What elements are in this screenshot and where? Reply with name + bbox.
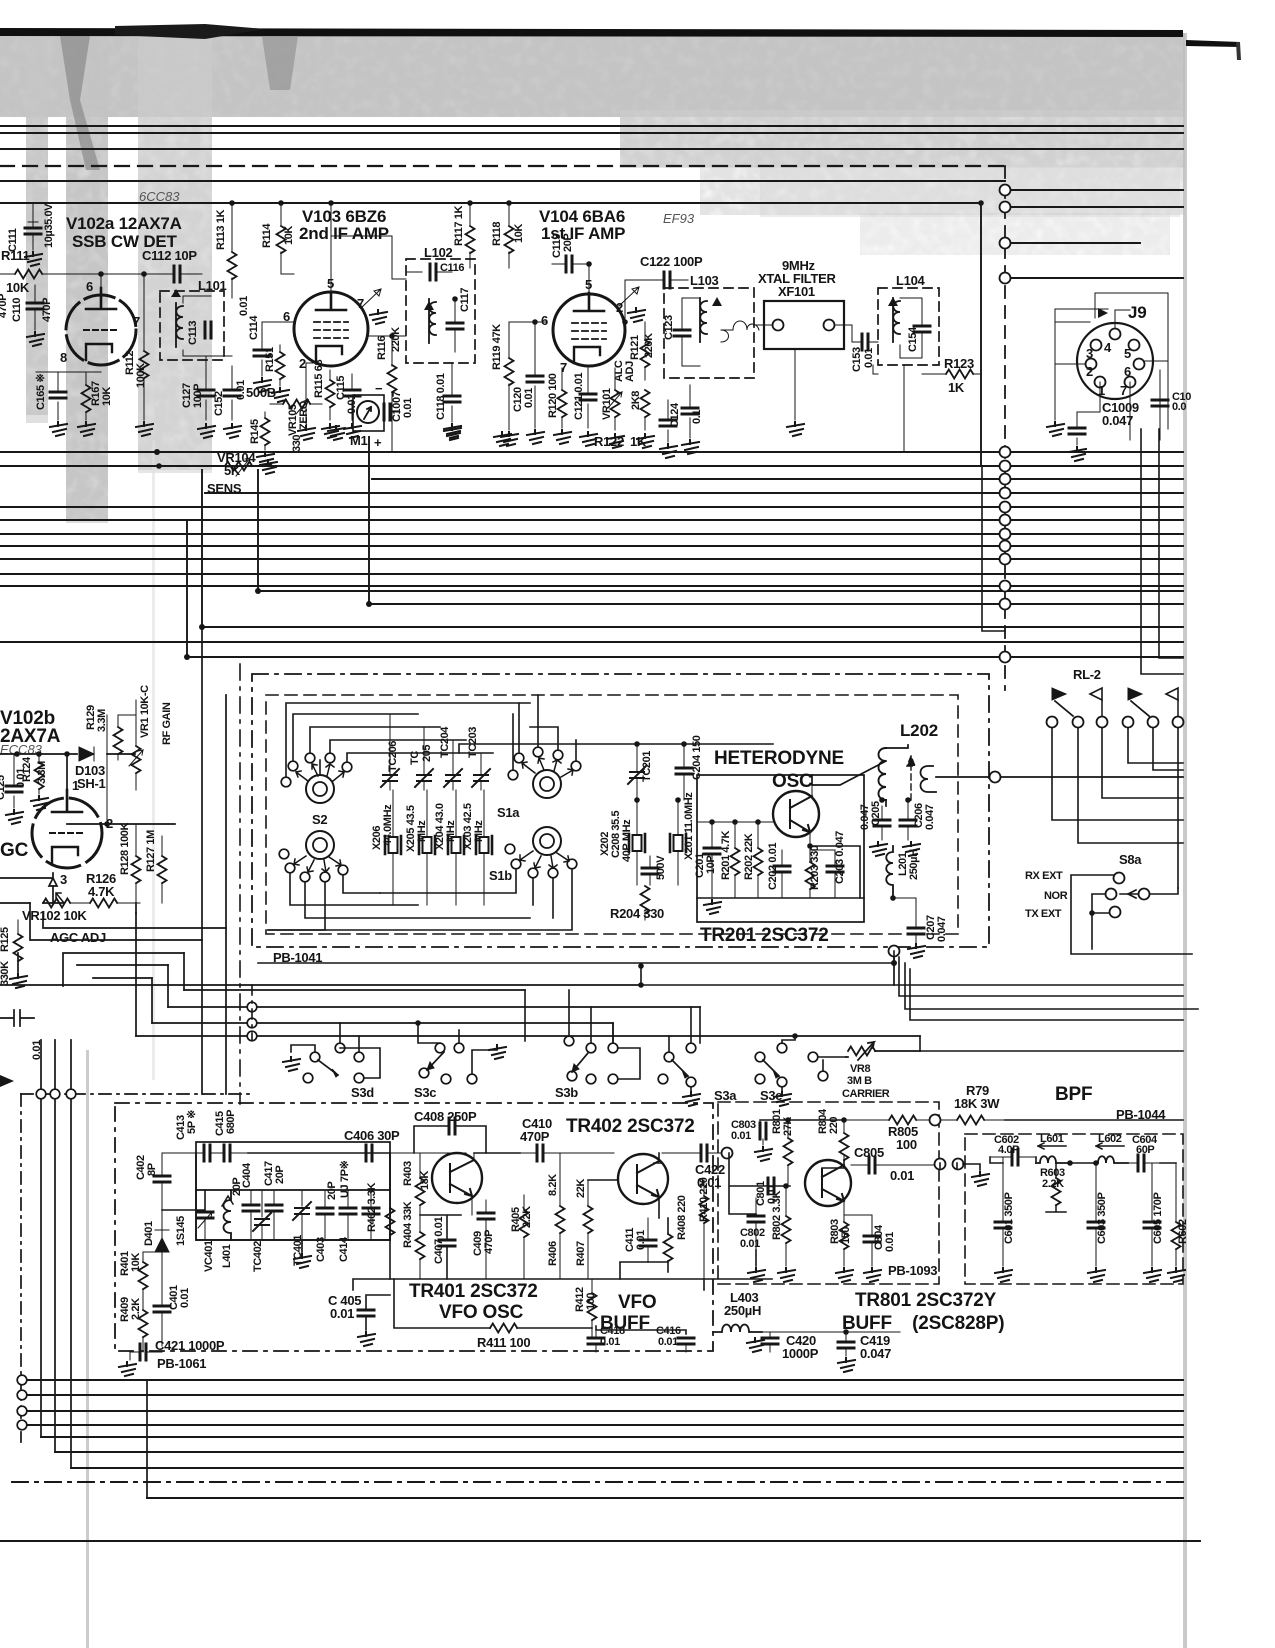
svg-text:R119 47K: R119 47K [491,324,503,370]
svg-text:VFO: VFO [618,1292,656,1313]
svg-text:R402 3.3K: R402 3.3K [366,1183,378,1232]
svg-text:7: 7 [357,296,364,311]
svg-text:0.01: 0.01 [330,1306,354,1321]
svg-text:VR8: VR8 [850,1063,870,1075]
svg-text:TC204: TC204 [439,726,451,758]
svg-text:8.2K: 8.2K [547,1174,559,1196]
svg-text:R403: R403 [402,1161,414,1186]
svg-text:TR402 2SC372: TR402 2SC372 [566,1116,695,1137]
svg-text:PB-1061: PB-1061 [157,1356,206,1371]
svg-text:R122: R122 [594,434,624,449]
svg-text:R404 33K: R404 33K [402,1201,414,1248]
svg-text:S3b: S3b [555,1085,578,1100]
svg-text:205: 205 [421,745,433,762]
svg-text:R116: R116 [376,336,388,360]
svg-text:4.7K: 4.7K [88,884,115,899]
svg-text:C125: C125 [0,775,7,800]
svg-text:10K: 10K [101,387,113,406]
svg-text:VFO OSC: VFO OSC [439,1302,524,1323]
svg-text:C123: C123 [663,315,675,340]
svg-text:EF93: EF93 [663,211,695,226]
svg-text:R120 100: R120 100 [547,373,559,418]
svg-text:AGC ADJ: AGC ADJ [50,930,106,945]
svg-text:10P: 10P [705,856,717,874]
svg-text:7: 7 [1120,383,1127,398]
svg-text:R204 330: R204 330 [610,906,664,921]
svg-text:S3e: S3e [760,1088,782,1103]
svg-text:TC: TC [409,751,421,765]
svg-text:R124: R124 [21,756,33,782]
svg-text:C805: C805 [854,1145,884,1160]
svg-text:C117: C117 [459,288,471,312]
svg-text:TR801 2SC372Y: TR801 2SC372Y [855,1290,997,1311]
svg-text:3.3M: 3.3M [96,709,108,732]
svg-text:C204 150: C204 150 [691,735,703,780]
svg-text:VR1 10K-C: VR1 10K-C [139,685,151,738]
svg-text:100K: 100K [135,363,147,388]
svg-text:R121: R121 [629,335,641,360]
svg-text:R118: R118 [491,222,503,246]
svg-text:C122 100P: C122 100P [640,254,703,269]
svg-text:7: 7 [133,314,140,329]
svg-text:UJ 7P※: UJ 7P※ [339,1160,351,1198]
svg-text:250µH: 250µH [908,849,920,880]
svg-text:470P: 470P [0,294,9,318]
svg-text:S8a: S8a [1119,852,1142,867]
svg-text:0.01: 0.01 [658,1336,678,1348]
svg-text:5: 5 [327,276,334,291]
svg-text:R151: R151 [264,347,276,372]
svg-text:10K: 10K [513,224,525,243]
svg-text:S2: S2 [312,812,327,827]
svg-text:C408 250P: C408 250P [414,1109,477,1124]
svg-text:TX EXT: TX EXT [1025,908,1062,920]
svg-text:500B: 500B [246,385,276,400]
svg-text:5: 5 [585,277,592,292]
svg-text:X201 11.0MHz: X201 11.0MHz [683,792,695,860]
svg-text:2.2K: 2.2K [521,1206,533,1228]
svg-text:M1: M1 [350,433,368,448]
svg-text:−: − [375,381,383,396]
svg-text:+: + [374,435,382,450]
svg-text:C116: C116 [440,262,464,274]
svg-text:C202 0.01: C202 0.01 [767,843,779,890]
svg-text:0.01: 0.01 [884,1232,896,1252]
svg-text:3.3M: 3.3M [36,761,48,784]
svg-text:4: 4 [1104,340,1112,355]
svg-text:BUFF (2SC828P): BUFF (2SC828P) [842,1313,1004,1334]
svg-text:C152: C152 [213,391,225,416]
svg-text:100P: 100P [192,384,204,408]
svg-text:1K: 1K [948,380,965,395]
svg-text:C110: C110 [11,298,23,322]
svg-text:C165 ※: C165 ※ [35,374,47,410]
svg-text:40P MHz: 40P MHz [621,819,633,862]
svg-text:6CC83: 6CC83 [139,189,180,204]
svg-text:3: 3 [60,872,67,887]
svg-text:8: 8 [60,350,67,365]
svg-text:J9: J9 [1128,303,1147,322]
svg-text:0.047: 0.047 [936,916,948,942]
svg-text:7: 7 [560,360,567,375]
svg-text:R127 1M: R127 1M [145,830,157,872]
svg-text:MHz: MHz [473,820,485,842]
svg-text:VR101: VR101 [601,388,613,420]
svg-text:18K: 18K [419,1171,431,1190]
svg-text:10K: 10K [6,280,30,295]
svg-text:C114: C114 [248,315,260,340]
svg-text:0.01: 0.01 [238,296,250,316]
svg-text:6: 6 [541,313,548,328]
svg-text:R111: R111 [1,248,30,263]
svg-text:VC401: VC401 [203,1240,215,1272]
svg-text:TC203: TC203 [467,727,479,758]
svg-text:0.01: 0.01 [740,1238,760,1250]
svg-text:C153: C153 [851,347,863,372]
svg-text:0.01: 0.01 [635,1230,647,1250]
svg-text:18K 3W: 18K 3W [954,1096,1000,1111]
svg-text:0.01: 0.01 [600,1336,620,1348]
svg-text:3: 3 [1086,346,1093,361]
svg-text:220: 220 [828,1117,840,1134]
svg-text:TC201: TC201 [641,751,653,782]
svg-text:0.047: 0.047 [1102,413,1133,428]
svg-text:100: 100 [896,1137,917,1152]
svg-text:20P: 20P [231,1178,243,1196]
svg-text:0.1: 0.1 [691,410,703,424]
svg-text:20P: 20P [562,234,574,252]
svg-text:R128 100K: R128 100K [119,822,131,875]
svg-text:R406: R406 [547,1241,559,1266]
svg-text:0.01: 0.01 [731,1130,751,1142]
svg-text:10K: 10K [283,226,295,245]
svg-text:C118 0.01: C118 0.01 [435,373,447,420]
svg-text:D401: D401 [143,1221,155,1246]
svg-text:R602: R602 [1177,1219,1189,1244]
svg-text:0.047: 0.047 [924,804,936,830]
svg-text:RX EXT: RX EXT [1025,870,1063,882]
svg-text:C205: C205 [870,801,882,826]
svg-text:S1b: S1b [489,868,512,883]
svg-text:RL-2: RL-2 [1073,667,1101,682]
svg-text:TR401 2SC372: TR401 2SC372 [409,1281,538,1302]
svg-text:60P: 60P [1136,1144,1154,1156]
svg-text:1000P: 1000P [782,1346,819,1361]
svg-text:L103: L103 [690,273,719,288]
svg-text:22K: 22K [575,1179,587,1198]
svg-text:L601: L601 [1040,1133,1064,1145]
svg-text:ADJ: ADJ [624,361,636,382]
svg-text:5: 5 [1124,346,1131,361]
svg-text:R123: R123 [944,356,974,371]
svg-text:MHz: MHz [445,820,457,842]
svg-text:330K: 330K [0,961,11,986]
svg-text:2: 2 [299,356,306,371]
svg-text:330: 330 [291,435,303,452]
svg-text:0.01: 0.01 [31,1040,43,1060]
svg-text:C421 1000P: C421 1000P [155,1338,225,1353]
svg-text:C605 170P: C605 170P [1152,1192,1164,1244]
svg-text:220K: 220K [643,333,655,358]
svg-text:470P: 470P [520,1129,550,1144]
svg-text:R411 100: R411 100 [477,1335,530,1350]
svg-text:5P ※: 5P ※ [186,1110,198,1134]
svg-text:L602: L602 [1098,1133,1122,1145]
svg-text:500V: 500V [655,855,667,880]
svg-text:R408 220: R408 220 [676,1195,688,1240]
svg-text:220K: 220K [390,327,402,352]
svg-text:R117 1K: R117 1K [453,206,465,246]
svg-text:2nd IF AMP: 2nd IF AMP [299,224,389,243]
svg-text:R113 1K: R113 1K [215,210,227,250]
svg-text:R125: R125 [0,927,11,952]
svg-text:SENS: SENS [207,481,242,496]
svg-text:R202 22K: R202 22K [743,833,755,880]
svg-text:10K: 10K [130,1253,142,1272]
svg-text:2.2K: 2.2K [1042,1178,1064,1190]
svg-text:SH-1: SH-1 [77,776,105,791]
svg-text:470P: 470P [483,1230,495,1254]
svg-text:S3d: S3d [351,1085,374,1100]
svg-text:44.0MHz: 44.0MHz [382,804,394,846]
svg-text:2: 2 [616,300,623,315]
svg-text:XF101: XF101 [778,284,815,299]
svg-text:VR102 10K: VR102 10K [22,908,87,923]
svg-text:C203 0.047: C203 0.047 [834,831,846,884]
svg-text:10µ35.0V: 10µ35.0V [43,203,55,248]
svg-text:2.2K: 2.2K [130,1298,142,1320]
svg-text:R114: R114 [261,223,273,248]
svg-text:S3a: S3a [714,1088,737,1103]
svg-text:R145: R145 [249,419,261,444]
svg-text:PB-1093: PB-1093 [888,1263,937,1278]
svg-text:ZERO: ZERO [298,400,310,430]
svg-text:20P: 20P [274,1166,286,1184]
svg-text:MHz: MHz [416,820,428,842]
svg-text:L102: L102 [424,245,453,260]
svg-text:L202: L202 [900,721,938,740]
svg-text:100: 100 [585,1293,597,1310]
svg-text:6: 6 [86,279,93,294]
svg-text:C603 350P: C603 350P [1096,1192,1108,1244]
svg-text:C112 10P: C112 10P [142,248,197,263]
svg-text:0.01: 0.01 [179,1288,191,1308]
svg-text:BPF: BPF [1055,1084,1092,1105]
svg-text:RF GAIN: RF GAIN [161,702,173,745]
svg-text:C407 0.01: C407 0.01 [433,1217,445,1264]
svg-text:R115 68: R115 68 [313,360,325,398]
svg-text:C406 30P: C406 30P [344,1128,400,1143]
svg-text:0.01: 0.01 [890,1168,914,1183]
svg-text:150: 150 [840,1227,852,1244]
svg-text:R201 4.7K: R201 4.7K [720,831,732,880]
svg-text:2K8: 2K8 [630,391,642,410]
svg-text:CARRIER: CARRIER [842,1088,890,1100]
svg-text:PB-1044: PB-1044 [1116,1107,1166,1122]
svg-text:L104: L104 [896,273,926,288]
svg-text:NOR: NOR [1044,890,1068,902]
svg-text:GC: GC [0,840,29,861]
svg-text:2: 2 [1086,364,1093,379]
svg-text:S1a: S1a [497,805,520,820]
svg-text:0.047: 0.047 [860,1346,891,1361]
svg-text:C124: C124 [669,402,681,428]
svg-text:R802 3.3K: R802 3.3K [771,1191,783,1240]
svg-text:C154: C154 [907,326,919,352]
svg-text:V102a 12AX7A: V102a 12AX7A [66,214,182,233]
svg-text:TC402: TC402 [252,1241,264,1272]
svg-text:4.0P: 4.0P [998,1144,1019,1156]
svg-text:L401: L401 [221,1244,233,1268]
svg-text:1: 1 [1098,383,1105,398]
svg-text:470P: 470P [41,298,53,322]
svg-text:C601 350P: C601 350P [1003,1192,1015,1244]
svg-text:5K: 5K [224,463,241,478]
svg-text:250µH: 250µH [724,1303,761,1318]
svg-text:HETERODYNE: HETERODYNE [714,748,844,769]
svg-text:0.0: 0.0 [1172,401,1186,413]
svg-text:8P: 8P [146,1163,158,1176]
svg-text:6: 6 [1124,364,1131,379]
svg-text:680P: 680P [225,1110,237,1134]
svg-text:TR201 2SC372: TR201 2SC372 [700,925,829,946]
svg-text:L101: L101 [198,278,227,293]
svg-text:C113: C113 [187,321,199,345]
svg-text:R407: R407 [575,1241,587,1266]
svg-text:R203 330: R203 330 [809,845,821,890]
svg-text:TC206: TC206 [387,741,399,772]
svg-text:C121 0.01: C121 0.01 [573,373,585,420]
svg-text:3M B: 3M B [847,1075,872,1087]
svg-text:0.01: 0.01 [523,388,535,408]
svg-text:0.01: 0.01 [402,398,414,418]
svg-text:1K: 1K [630,434,647,449]
svg-text:1S145: 1S145 [175,1216,187,1246]
svg-text:S3c: S3c [414,1085,436,1100]
